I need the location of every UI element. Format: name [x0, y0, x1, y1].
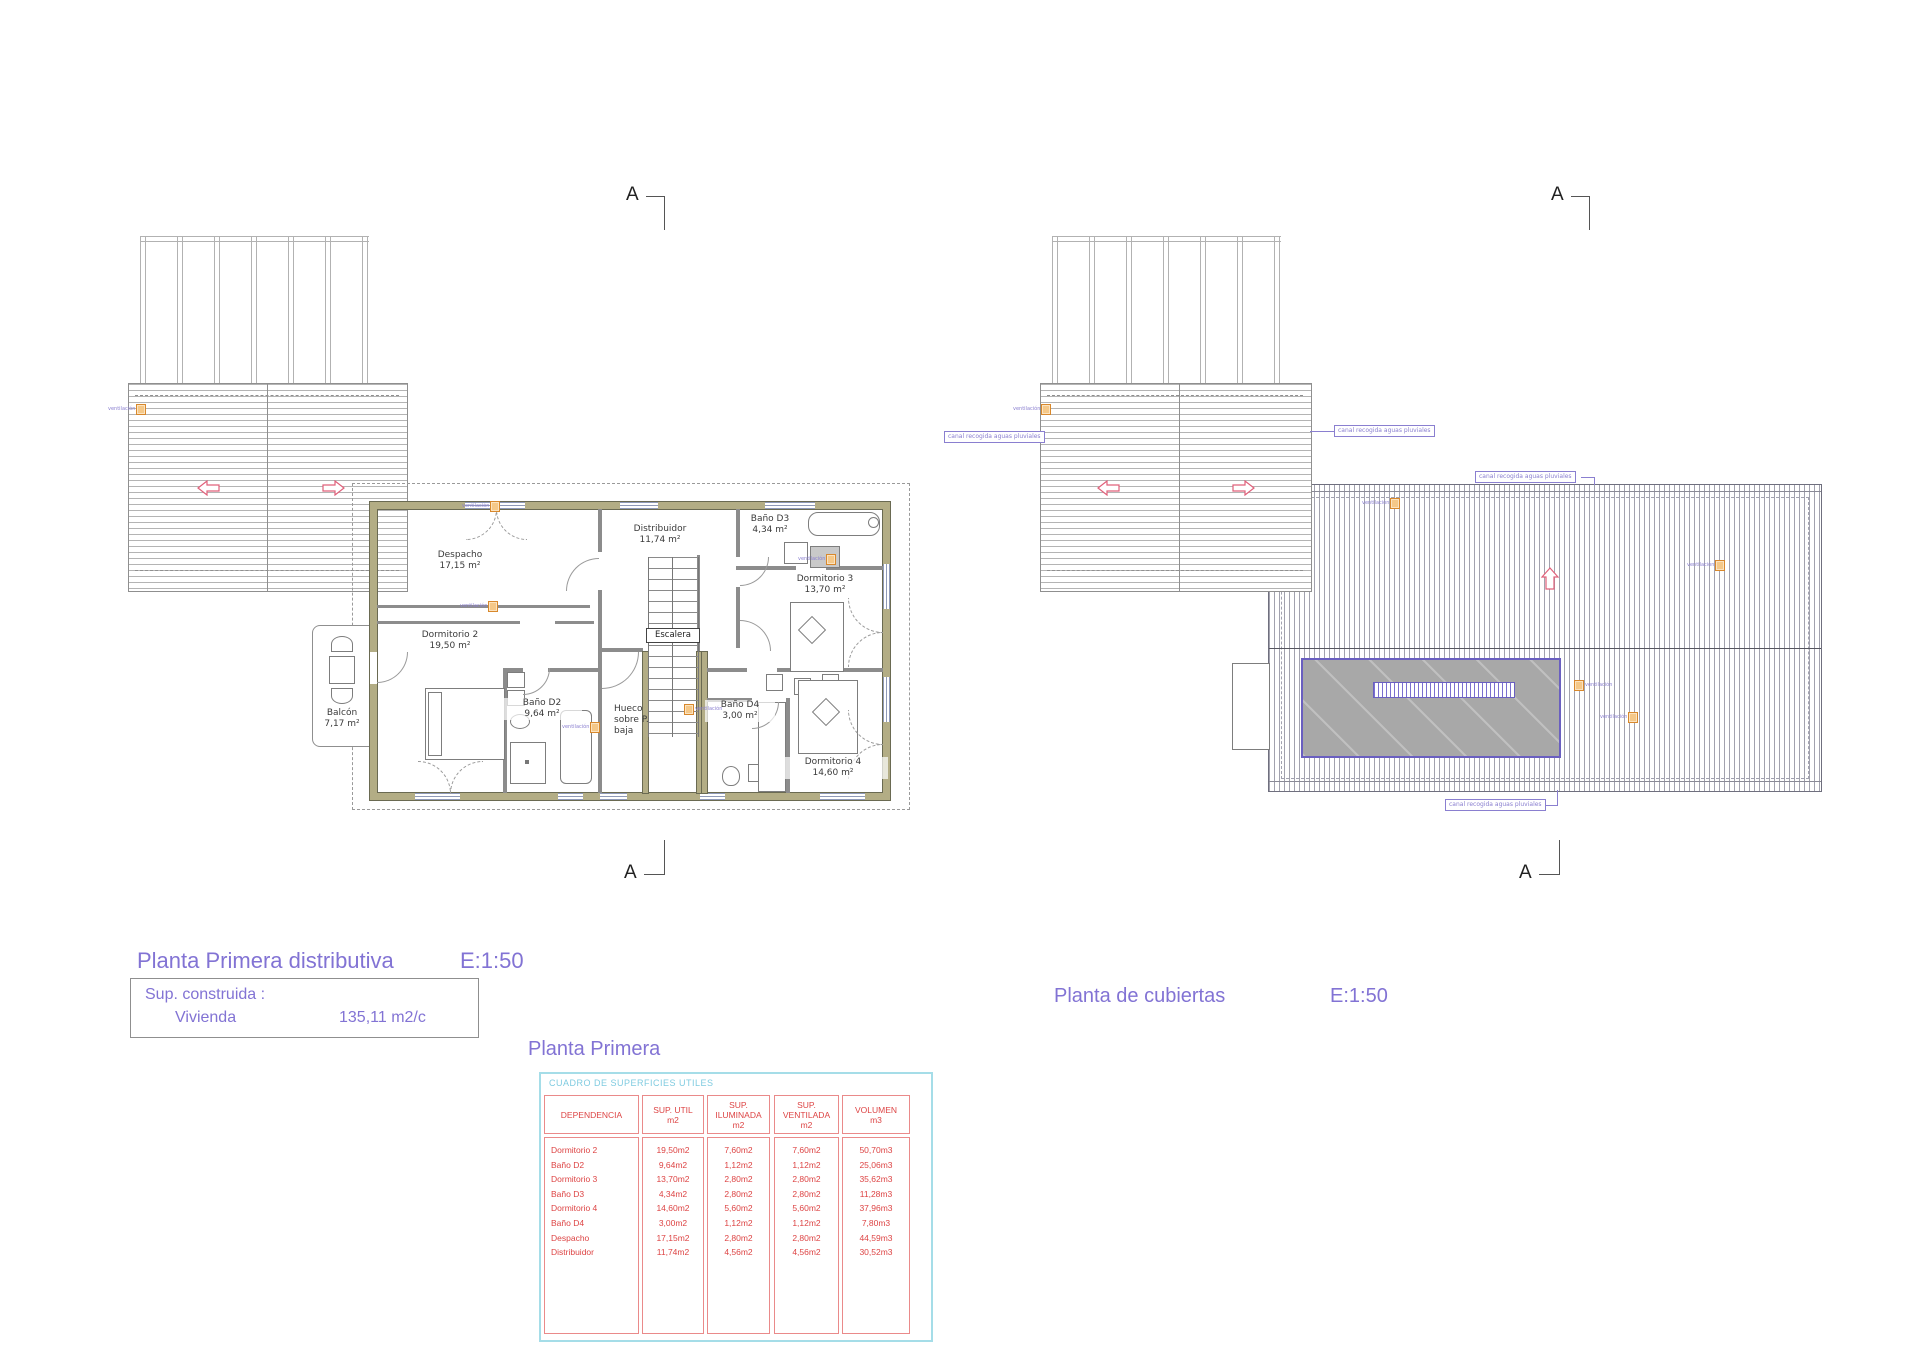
built-area-line1: Sup. construida :: [145, 986, 265, 1004]
window: [765, 502, 815, 509]
wall: [555, 621, 594, 624]
vent-marker: ventilación: [1600, 712, 1638, 723]
vent-icon: [490, 501, 500, 512]
table-cell: 4,56m2: [775, 1245, 838, 1260]
vent-marker: ventilación: [1687, 560, 1725, 571]
room-label-dormitorio4: Dormitorio 4 14,60 m²: [778, 757, 888, 779]
table-header-sup-ventilada: SUP. VENTILADA m2: [774, 1095, 839, 1134]
slope-arrow-right-icon: [321, 480, 345, 496]
table-header-volumen: VOLUMEN m3: [842, 1095, 910, 1134]
table-cell: 3,00m2: [643, 1216, 703, 1231]
gutter-label: canal recogida aguas pluviales: [1445, 799, 1546, 811]
table-cell: 11,28m3: [843, 1187, 909, 1202]
balcony: Balcón 7,17 m²: [312, 625, 374, 747]
roof-eave-bottom: [1269, 781, 1821, 782]
table-cell: Dormitorio 3: [545, 1172, 638, 1187]
table-cell: Dormitorio 2: [545, 1143, 638, 1158]
room-label-hueco: Hueco sobre P. baja: [608, 704, 684, 737]
table-cell: 7,80m3: [843, 1216, 909, 1231]
table-cell: 17,15m2: [643, 1231, 703, 1246]
section-marker-a: A: [1519, 862, 1532, 884]
table-cell: 4,56m2: [708, 1245, 769, 1260]
wall: [377, 621, 520, 624]
section-marker-a: A: [626, 184, 639, 206]
table-cell: 19,50m2: [643, 1143, 703, 1158]
window: [415, 793, 460, 800]
surfaces-table: CUADRO DE SUPERFICIES UTILES DEPENDENCIA…: [539, 1072, 933, 1342]
table-cell: Baño D2: [545, 1158, 638, 1173]
table-cell: 4,34m2: [643, 1187, 703, 1202]
section-line: [1571, 196, 1589, 197]
slope-arrow-left-icon: [1097, 480, 1121, 496]
floor-plan-house: Escalera: [370, 502, 890, 800]
table-cell: 13,70m2: [643, 1172, 703, 1187]
table-box-title: CUADRO DE SUPERFICIES UTILES: [549, 1078, 714, 1088]
window: [883, 677, 890, 722]
pergola-beam-right: [1052, 241, 1281, 242]
vent-icon: [590, 722, 600, 733]
table-cell: 1,12m2: [708, 1158, 769, 1173]
section-line: [1589, 196, 1590, 230]
balcony-door-opening: [370, 652, 377, 684]
table-cell: 7,60m2: [708, 1143, 769, 1158]
leader-line: [1557, 790, 1558, 806]
slope-arrow-left-icon: [197, 480, 221, 496]
window: [600, 793, 627, 800]
gutter-label: canal recogida aguas pluviales: [944, 431, 1045, 443]
roof-ridge-line: [1269, 648, 1821, 649]
right-plan-title: Planta de cubiertas: [1054, 985, 1225, 1008]
vent-icon: [136, 404, 146, 415]
section-line: [644, 874, 664, 875]
room-label-bano-d2: Baño D2 9,64 m²: [502, 698, 582, 720]
table-cell: Distribuidor: [545, 1245, 638, 1260]
roof-protrusion: [1232, 663, 1270, 750]
leader-line: [1594, 477, 1595, 485]
table-cell: 25,06m3: [843, 1158, 909, 1173]
room-label-dormitorio3: Dormitorio 3 13,70 m²: [770, 574, 880, 596]
pergola-posts-left: [140, 236, 369, 384]
pergola-posts-right: [1052, 236, 1281, 384]
built-area-value: 135,11 m2/c: [339, 1009, 426, 1027]
bed-pillow: [428, 692, 442, 756]
chair: [766, 674, 783, 691]
built-area-label: Vivienda: [175, 1009, 236, 1027]
vent-icon: [488, 601, 498, 612]
table-cell: 1,12m2: [708, 1216, 769, 1231]
slope-arrow-up-icon: [1541, 567, 1559, 591]
right-plan-scale: E:1:50: [1330, 985, 1388, 1008]
vent-marker: ventilación: [462, 501, 500, 512]
vent-marker: ventilación: [108, 404, 146, 415]
balcony-chair: [331, 636, 353, 652]
vent-icon: [1390, 498, 1400, 509]
section-marker-a: A: [1551, 184, 1564, 206]
vent-icon: [826, 554, 836, 565]
table-cell: 2,80m2: [708, 1231, 769, 1246]
table-cell: 5,60m2: [775, 1201, 838, 1216]
vent-marker: ventilación: [798, 554, 836, 565]
bathtub-faucet: [868, 517, 879, 528]
vent-marker: ventilación: [562, 722, 600, 733]
table-column-sup-util: 19,50m2 9,64m2 13,70m2 4,34m2 14,60m2 3,…: [642, 1137, 704, 1334]
section-line: [1539, 874, 1559, 875]
leader-line: [1581, 477, 1595, 478]
shower-drain: [525, 760, 529, 764]
stair-label: Escalera: [655, 630, 691, 640]
wall: [598, 509, 602, 552]
vent-icon: [1715, 560, 1725, 571]
section-line: [664, 840, 665, 875]
table-cell: 50,70m3: [843, 1143, 909, 1158]
window: [558, 793, 583, 800]
drawing-sheet: ventilación Balcón 7,17 m²: [0, 0, 1920, 1357]
table-column-volumen: 50,70m3 25,06m3 35,62m3 11,28m3 37,96m3 …: [842, 1137, 910, 1334]
wall: [707, 668, 747, 672]
table-cell: 14,60m2: [643, 1201, 703, 1216]
table-header-dependencia: DEPENDENCIA: [544, 1095, 639, 1134]
vent-marker: ventilación: [1013, 404, 1051, 415]
pergola-divider: [1179, 384, 1180, 591]
table-cell: 35,62m3: [843, 1172, 909, 1187]
slope-arrow-right-icon: [1231, 480, 1255, 496]
balcony-chair: [331, 688, 353, 704]
table-cell: 5,60m2: [708, 1201, 769, 1216]
room-label-distribuidor: Distribuidor 11,74 m²: [605, 524, 715, 546]
section-line: [1559, 840, 1560, 875]
window: [700, 793, 725, 800]
table-title: Planta Primera: [528, 1038, 660, 1061]
gutter-label: canal recogida aguas pluviales: [1475, 471, 1576, 483]
table-cell: 2,80m2: [775, 1187, 838, 1202]
wall-center: [702, 652, 707, 793]
pergola-beam-left: [140, 241, 369, 242]
wall: [598, 590, 602, 648]
toilet-d4: [722, 766, 740, 786]
vent-icon: [1574, 680, 1584, 691]
table-cell: 44,59m3: [843, 1231, 909, 1246]
terrace-walkway-strip: [1373, 682, 1515, 698]
table-header-sup-iluminada: SUP. ILUMINADA m2: [707, 1095, 770, 1134]
table-cell: Despacho: [545, 1231, 638, 1246]
table-cell: 2,80m2: [775, 1172, 838, 1187]
pergola-divider: [267, 384, 268, 591]
roof-plan: [1268, 484, 1822, 792]
leader-line: [1545, 805, 1557, 806]
left-plan-scale: E:1:50: [460, 948, 524, 974]
table-cell: 2,80m2: [775, 1231, 838, 1246]
pergola-dashed-top: [1047, 395, 1303, 396]
left-plan-title: Planta Primera distributiva: [137, 948, 394, 974]
table-cell: 37,96m3: [843, 1201, 909, 1216]
flat-roof-terrace: [1301, 658, 1561, 758]
table-column-dependencia: Dormitorio 2 Baño D2 Dormitorio 3 Baño D…: [544, 1137, 639, 1334]
stair-label-box: Escalera: [646, 628, 700, 643]
built-area-box: Sup. construida : Vivienda 135,11 m2/c: [130, 978, 479, 1038]
table-header-sup-util: SUP. UTIL m2: [642, 1095, 704, 1134]
vent-icon: [684, 704, 694, 715]
table-cell: 1,12m2: [775, 1158, 838, 1173]
room-label-balcon: Balcón 7,17 m²: [313, 708, 371, 730]
table-cell: 9,64m2: [643, 1158, 703, 1173]
vent-icon: [1041, 404, 1051, 415]
vent-marker: ventilación: [1362, 498, 1400, 509]
pergola-roof-right: [1040, 383, 1312, 592]
wall: [548, 668, 598, 672]
table-column-sup-iluminada: 7,60m2 1,12m2 2,80m2 2,80m2 5,60m2 1,12m…: [707, 1137, 770, 1334]
room-label-despacho: Despacho 17,15 m²: [400, 550, 520, 572]
section-marker-a: A: [624, 862, 637, 884]
balcony-table: [329, 656, 355, 684]
pergola-dashed-bottom: [1047, 570, 1303, 571]
table-cell: 2,80m2: [708, 1172, 769, 1187]
room-label-bano-d3: Baño D3 4,34 m²: [735, 514, 805, 536]
table-cell: 30,52m3: [843, 1245, 909, 1260]
table-cell: Dormitorio 4: [545, 1201, 638, 1216]
roof-eave-top: [1269, 491, 1821, 492]
vent-marker: ventilación: [1574, 680, 1612, 691]
gutter-label: canal recogida aguas pluviales: [1334, 425, 1435, 437]
table-cell: Baño D3: [545, 1187, 638, 1202]
room-label-dormitorio2: Dormitorio 2 19,50 m²: [395, 630, 505, 652]
table-column-sup-ventilada: 7,60m2 1,12m2 2,80m2 2,80m2 5,60m2 1,12m…: [774, 1137, 839, 1334]
vent-label: ventilación: [108, 407, 135, 412]
table-cell: 2,80m2: [708, 1187, 769, 1202]
vent-marker: ventilación: [684, 704, 722, 715]
window: [883, 564, 890, 609]
section-line: [664, 196, 665, 230]
pergola-dashed-top: [135, 395, 399, 396]
window: [820, 793, 865, 800]
table-cell: 11,74m2: [643, 1245, 703, 1260]
table-cell: 1,12m2: [775, 1216, 838, 1231]
leader-line: [1310, 431, 1334, 432]
window: [620, 502, 658, 509]
section-line: [646, 196, 664, 197]
vent-icon: [1628, 712, 1638, 723]
table-cell: Baño D4: [545, 1216, 638, 1231]
table-cell: 7,60m2: [775, 1143, 838, 1158]
vent-marker: ventilación: [460, 601, 498, 612]
